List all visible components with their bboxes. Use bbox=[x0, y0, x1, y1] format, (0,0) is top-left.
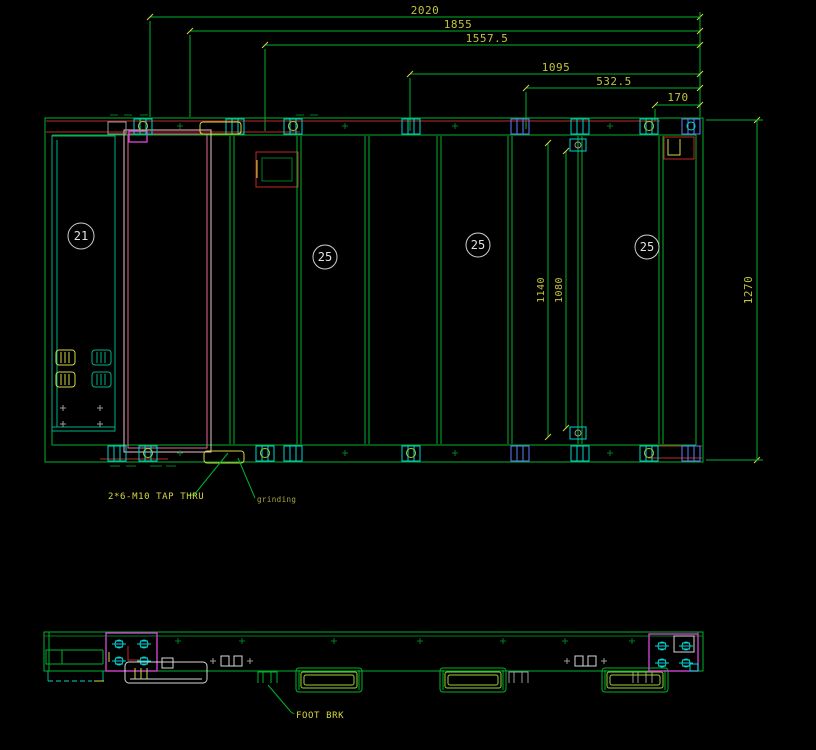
slide-fastener bbox=[92, 350, 111, 365]
dim-text-532-5[interactable]: 532.5 bbox=[596, 75, 632, 88]
balloon-21[interactable]: 21 bbox=[68, 223, 94, 249]
cad-drawing: 2020 1855 1557.5 1095 532.5 170 bbox=[0, 0, 816, 750]
pink-subframe bbox=[124, 130, 211, 452]
balloon-21-label: 21 bbox=[74, 229, 88, 243]
callout-tap-thru-label: 2*6-M10 TAP THRU bbox=[108, 492, 204, 502]
slide-fastener bbox=[92, 372, 111, 387]
dim-text-1095[interactable]: 1095 bbox=[542, 61, 571, 74]
dim-text-170[interactable]: 170 bbox=[667, 91, 688, 104]
red-component bbox=[256, 152, 298, 187]
cad-canvas[interactable]: 2020 1855 1557.5 1095 532.5 170 bbox=[0, 0, 816, 750]
foot-bracket bbox=[509, 672, 528, 683]
dim-text-2020[interactable]: 2020 bbox=[411, 4, 440, 17]
callout-foot-brk-label: FOOT BRK bbox=[296, 711, 344, 721]
balloon-25-c[interactable]: 25 bbox=[635, 235, 659, 259]
foot-bracket bbox=[633, 672, 652, 683]
callout-grinding[interactable]: grinding bbox=[238, 458, 296, 504]
balloon-25-c-label: 25 bbox=[640, 240, 654, 254]
section-view bbox=[44, 632, 703, 692]
dim-text-1270[interactable]: 1270 bbox=[742, 276, 755, 305]
dimension-1080: 1080 bbox=[554, 148, 569, 431]
dimension-1855: 1855 bbox=[187, 18, 703, 117]
top-view-frame bbox=[45, 115, 703, 466]
callout-foot-brk[interactable]: FOOT BRK bbox=[268, 685, 344, 721]
clip-detail bbox=[564, 656, 607, 666]
micro-ticks bbox=[110, 115, 318, 466]
left-panel bbox=[52, 136, 115, 431]
clip-detail bbox=[210, 656, 253, 666]
foot-bracket bbox=[258, 672, 277, 683]
cross-members bbox=[230, 136, 663, 444]
right-subframe-details bbox=[570, 137, 694, 439]
balloon-25-a[interactable]: 25 bbox=[313, 245, 337, 269]
dimension-2020: 2020 bbox=[147, 4, 703, 117]
balloon-25-b-label: 25 bbox=[471, 238, 485, 252]
left-drive-box bbox=[106, 633, 157, 671]
dim-text-1855[interactable]: 1855 bbox=[444, 18, 473, 31]
rail-tray bbox=[204, 451, 244, 463]
balloon-25-b[interactable]: 25 bbox=[466, 233, 490, 257]
dimension-1270: 1270 bbox=[706, 117, 763, 463]
slide-fastener bbox=[56, 350, 75, 365]
dim-text-1140[interactable]: 1140 bbox=[536, 277, 547, 303]
callout-grinding-label: grinding bbox=[257, 495, 296, 504]
dimension-170: 170 bbox=[652, 91, 703, 121]
levelling-foot bbox=[440, 668, 506, 692]
dimension-1557-5: 1557.5 bbox=[262, 32, 703, 131]
balloon-25-a-label: 25 bbox=[318, 250, 332, 264]
bottom-rail-brackets bbox=[108, 446, 700, 463]
levelling-foot bbox=[296, 668, 362, 692]
dimension-1140: 1140 bbox=[536, 140, 551, 440]
dim-text-1080[interactable]: 1080 bbox=[554, 277, 565, 303]
slide-fastener bbox=[56, 372, 75, 387]
dim-text-1557-5[interactable]: 1557.5 bbox=[466, 32, 509, 45]
right-drive-box bbox=[649, 634, 698, 671]
hinge-block bbox=[129, 131, 147, 142]
